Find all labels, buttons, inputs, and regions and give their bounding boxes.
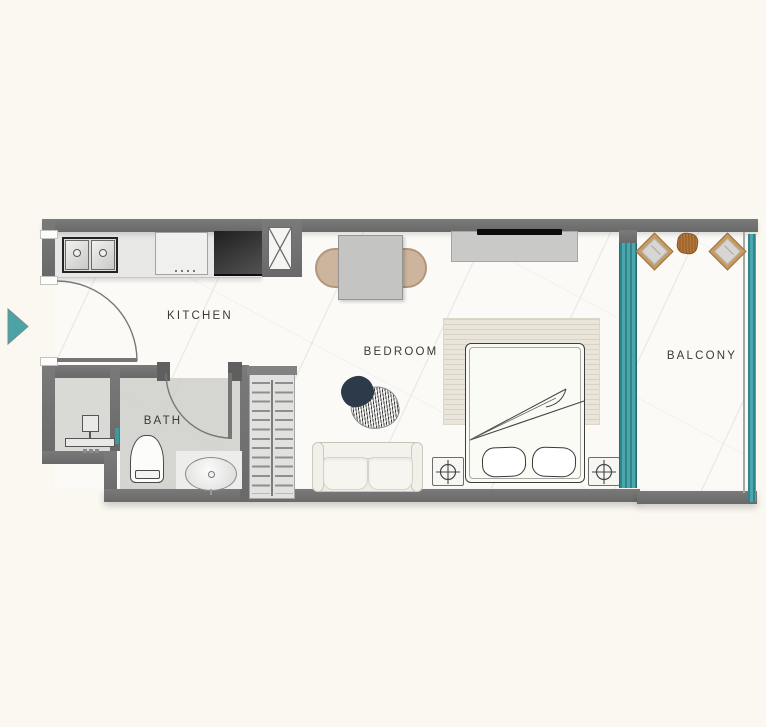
bedroom-label: BEDROOM bbox=[364, 346, 439, 358]
wall-bottom-balcony bbox=[637, 491, 757, 504]
toilet-seat bbox=[135, 470, 160, 479]
sink-basin-right bbox=[91, 240, 115, 270]
wardrobe-rod bbox=[271, 380, 273, 496]
bath-door-leaf bbox=[228, 373, 232, 439]
water-heater-marks bbox=[83, 449, 87, 453]
wall-top bbox=[42, 219, 758, 232]
duct-shaft-icon bbox=[268, 227, 292, 270]
stove-icon bbox=[155, 232, 208, 275]
sink-drain bbox=[210, 489, 212, 495]
counter-end-cap bbox=[40, 230, 58, 239]
bath-label: BATH bbox=[144, 415, 183, 427]
toilet-icon bbox=[130, 435, 164, 483]
stove-knobs bbox=[175, 270, 177, 272]
wall-left-upper bbox=[42, 219, 55, 277]
balcony-rail-line bbox=[743, 232, 745, 493]
water-heater-bar bbox=[65, 438, 115, 447]
kitchen-label: KITCHEN bbox=[167, 310, 233, 322]
balcony-railing-icon bbox=[748, 234, 756, 502]
sofa-icon bbox=[312, 442, 423, 492]
bath-door-jamb-left bbox=[157, 362, 170, 381]
nightstand-right bbox=[588, 457, 620, 486]
balcony-floor bbox=[637, 232, 743, 492]
pillow-icon bbox=[532, 446, 577, 477]
balcony-label: BALCONY bbox=[667, 350, 737, 362]
wardrobe-hangers-right bbox=[275, 382, 293, 494]
bathroom-sink-icon bbox=[185, 457, 237, 491]
entry-jamb-top bbox=[40, 276, 58, 285]
chair-seat bbox=[714, 238, 741, 265]
floor-plan-canvas: KITCHEN BEDROOM BATH BALCONY bbox=[0, 0, 766, 727]
entrance-arrow-icon bbox=[8, 309, 28, 344]
entry-door-leaf bbox=[57, 358, 137, 362]
water-heater-icon bbox=[82, 415, 99, 432]
sofa-cushion bbox=[368, 457, 413, 490]
wardrobe-top-bar bbox=[247, 366, 297, 375]
tv-console bbox=[451, 231, 578, 262]
wall-bath-top-left bbox=[55, 365, 157, 378]
utility-pocket-door bbox=[115, 428, 119, 444]
sink-basin-left bbox=[65, 240, 89, 270]
wall-left-lower bbox=[42, 365, 55, 464]
chair-seat bbox=[641, 238, 668, 265]
dining-table-icon bbox=[338, 235, 403, 300]
kitchen-sink-icon bbox=[62, 237, 118, 273]
nightstand-left bbox=[432, 457, 464, 486]
sliding-glass-door-icon bbox=[619, 243, 637, 488]
pillow-icon bbox=[481, 446, 526, 478]
entry-jamb-bottom bbox=[40, 357, 58, 366]
wardrobe-hangers-left bbox=[252, 382, 270, 494]
counter-appliance-icon bbox=[214, 231, 262, 276]
sofa-cushion bbox=[323, 457, 368, 490]
tv-icon bbox=[477, 229, 562, 235]
wall-balcony-stub bbox=[619, 230, 637, 243]
